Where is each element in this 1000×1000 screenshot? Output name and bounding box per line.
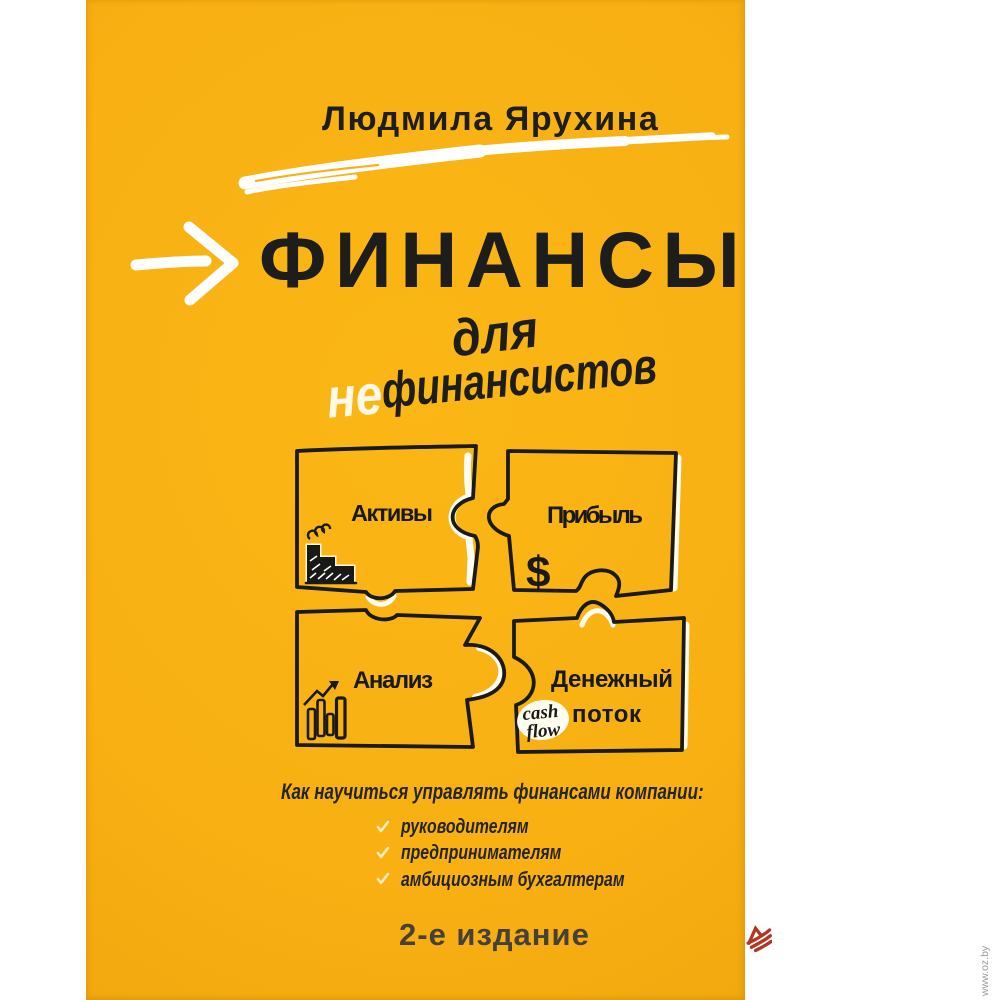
svg-text:Денежный: Денежный bbox=[551, 666, 673, 693]
svg-text:$: $ bbox=[526, 548, 550, 597]
svg-text:Активы: Активы bbox=[351, 500, 433, 526]
svg-text:поток: поток bbox=[572, 701, 642, 728]
svg-text:flow: flow bbox=[526, 719, 562, 743]
svg-text:Прибыль: Прибыль bbox=[547, 502, 643, 529]
svg-text:Анализ: Анализ bbox=[353, 667, 433, 694]
